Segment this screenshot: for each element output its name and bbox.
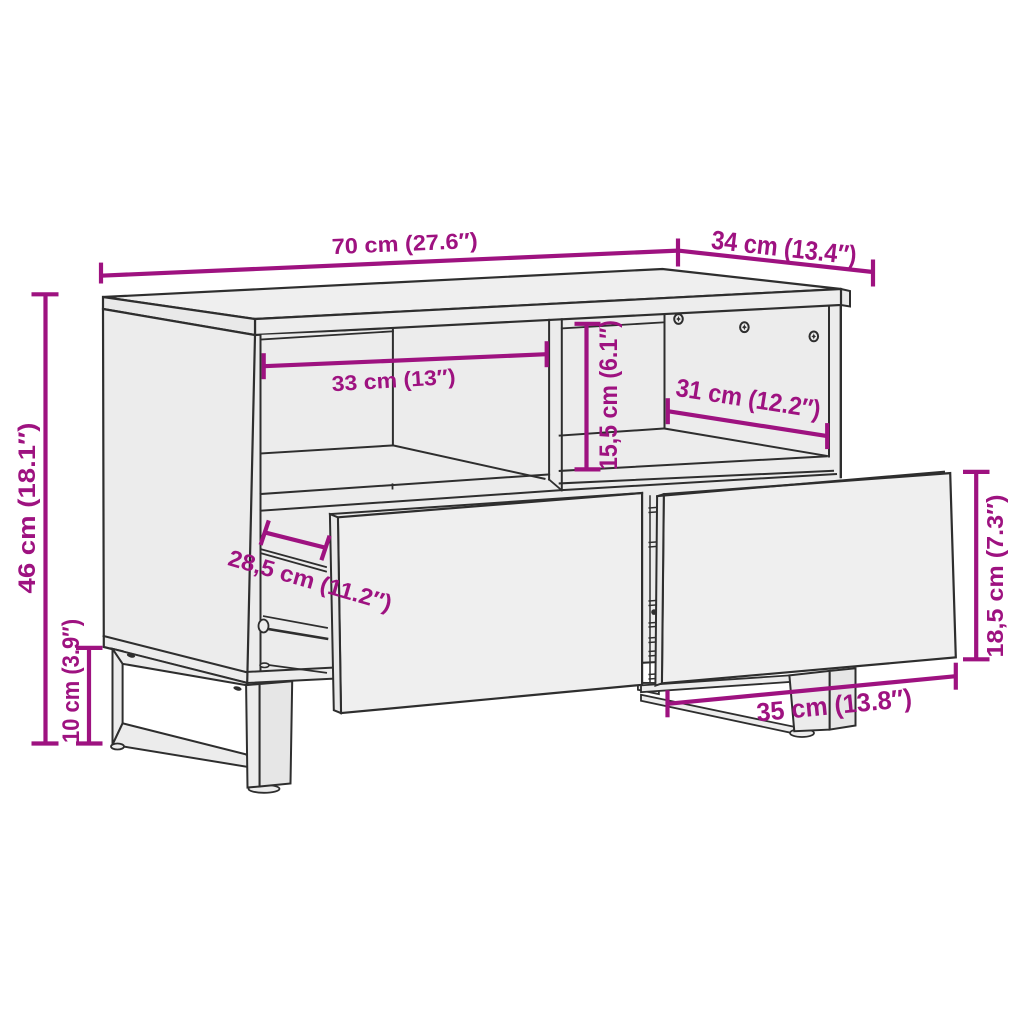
svg-text:18,5 cm (7.3″): 18,5 cm (7.3″) <box>982 495 1008 658</box>
svg-text:70 cm (27.6″): 70 cm (27.6″) <box>331 228 478 259</box>
svg-text:15,5 cm (6.1″): 15,5 cm (6.1″) <box>595 320 623 470</box>
svg-text:46 cm (18.1″): 46 cm (18.1″) <box>14 423 41 594</box>
svg-text:10 cm (3.9″): 10 cm (3.9″) <box>58 619 85 743</box>
